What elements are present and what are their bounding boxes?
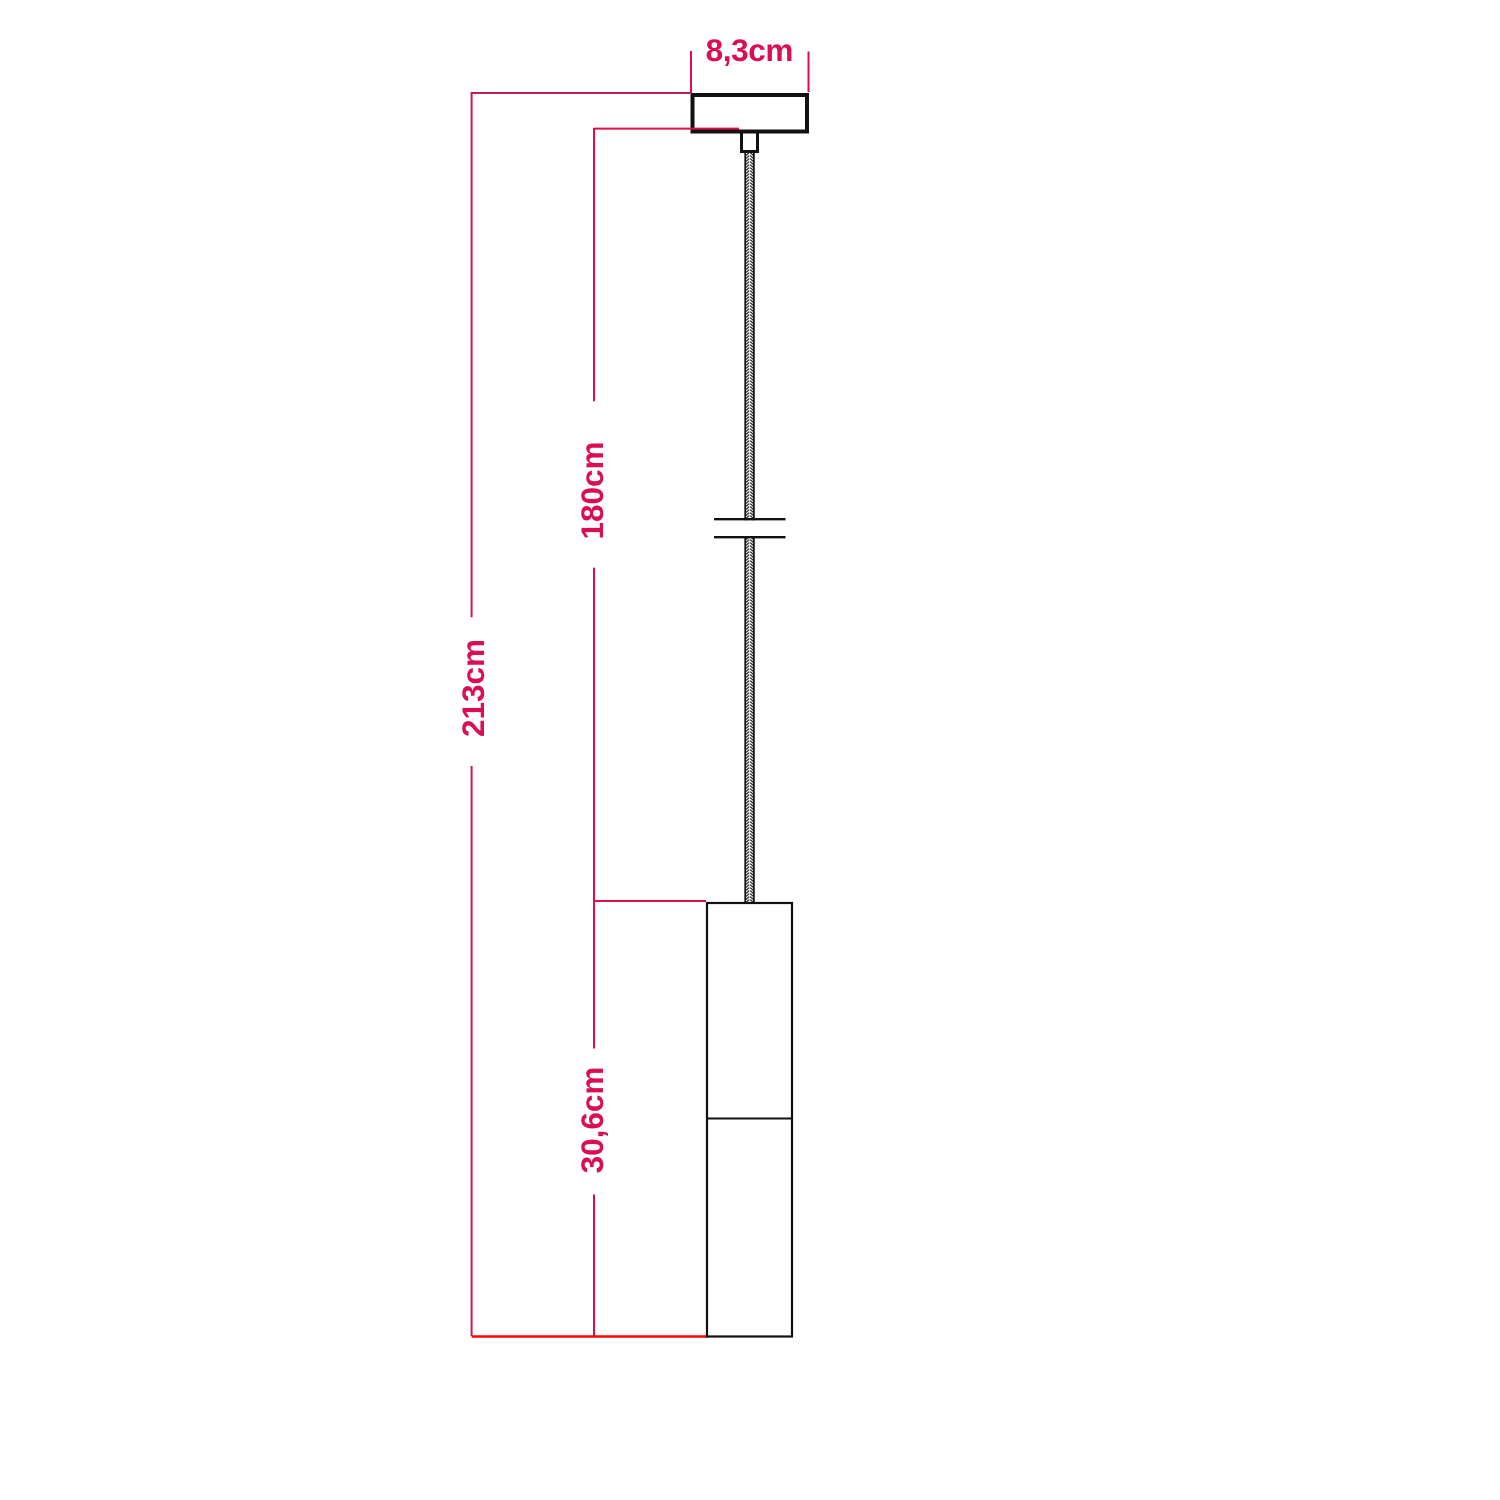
svg-text:8,3cm: 8,3cm: [706, 32, 793, 68]
svg-text:213cm: 213cm: [455, 639, 491, 737]
svg-text:180cm: 180cm: [574, 441, 610, 539]
svg-text:30,6cm: 30,6cm: [574, 1067, 610, 1174]
